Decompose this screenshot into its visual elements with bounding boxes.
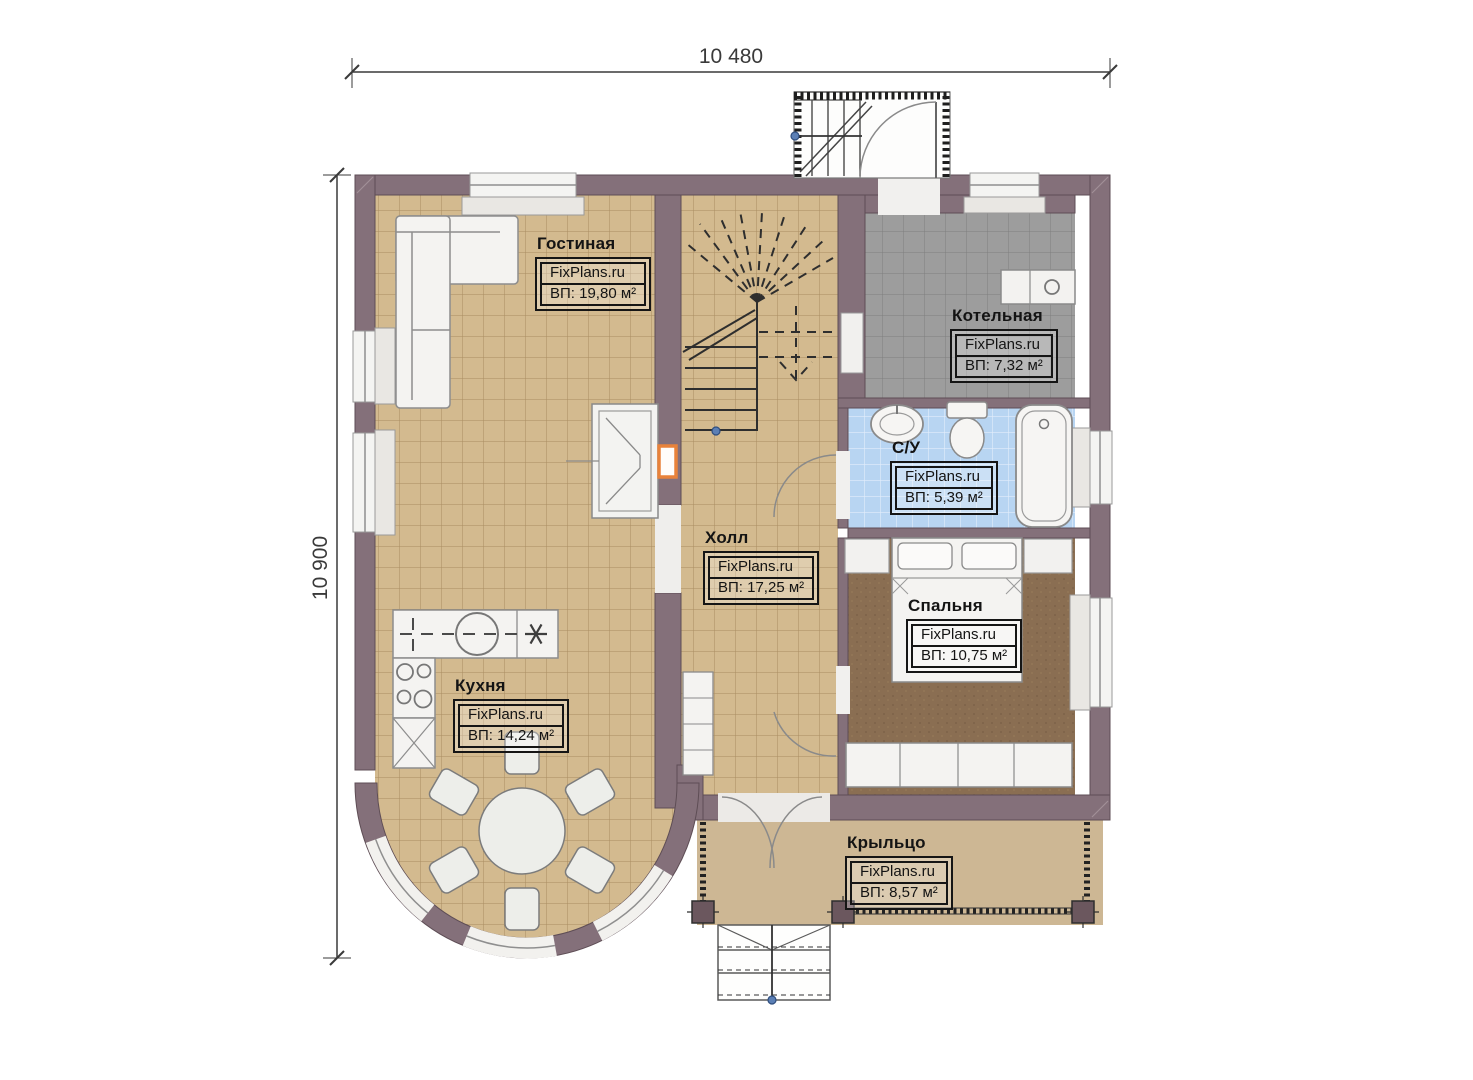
- dimension-width-label: 10 480: [699, 45, 763, 68]
- watermark-text: FixPlans.ru: [955, 334, 1053, 357]
- watermark-box: FixPlans.ru ВП: 10,75 м²: [906, 619, 1022, 673]
- room-area: ВП: 14,24 м²: [458, 727, 564, 748]
- wardrobe: [846, 743, 1072, 787]
- watermark-text: FixPlans.ru: [911, 624, 1017, 647]
- room-area: ВП: 8,57 м²: [850, 884, 948, 905]
- chimney-marker: [659, 446, 676, 477]
- watermark-box: FixPlans.ru ВП: 19,80 м²: [535, 257, 651, 311]
- opening-living-hall: [655, 505, 681, 593]
- nightstand: [1024, 539, 1072, 573]
- watermark-text: FixPlans.ru: [850, 861, 948, 884]
- room-name: Гостиная: [537, 234, 651, 254]
- watermark-box: FixPlans.ru ВП: 8,57 м²: [845, 856, 953, 910]
- watermark-text: FixPlans.ru: [458, 704, 564, 727]
- watermark-box: FixPlans.ru ВП: 17,25 м²: [703, 551, 819, 605]
- room-area: ВП: 17,25 м²: [708, 579, 814, 600]
- hall-cabinet: [683, 672, 713, 775]
- watermark-text: FixPlans.ru: [708, 556, 814, 579]
- side-entrance-landing: [794, 92, 950, 178]
- wall-bath-bedroom: [848, 528, 1090, 538]
- floor-plan: 10 480 10 900 Гостиная FixPlans.ru ВП: 1…: [0, 0, 1473, 1080]
- door-opening-bathroom: [836, 451, 850, 519]
- room-label-boiler: Котельная FixPlans.ru ВП: 7,32 м²: [950, 306, 1058, 383]
- entrance-steps: [718, 925, 830, 1000]
- room-area: ВП: 19,80 м²: [540, 285, 646, 306]
- boiler-unit: [1001, 270, 1075, 304]
- room-label-bathroom: С/У FixPlans.ru ВП: 5,39 м²: [890, 438, 998, 515]
- chair: [505, 888, 539, 930]
- room-label-porch: Крыльцо FixPlans.ru ВП: 8,57 м²: [845, 833, 953, 910]
- pillow: [962, 543, 1016, 569]
- room-name: Котельная: [952, 306, 1058, 326]
- watermark-text: FixPlans.ru: [540, 262, 646, 285]
- door-opening-side-entrance: [878, 173, 940, 215]
- room-area: ВП: 10,75 м²: [911, 647, 1017, 668]
- room-area: ВП: 7,32 м²: [955, 357, 1053, 378]
- room-name: С/У: [892, 438, 998, 458]
- watermark-box: FixPlans.ru ВП: 7,32 м²: [950, 329, 1058, 383]
- nightstand: [845, 539, 889, 573]
- door-opening-bedroom: [836, 666, 850, 714]
- bathtub: [1016, 405, 1072, 527]
- room-name: Холл: [705, 528, 819, 548]
- room-name: Крыльцо: [847, 833, 953, 853]
- dimension-height-label: 10 900: [309, 536, 332, 600]
- room-area: ВП: 5,39 м²: [895, 489, 993, 510]
- room-name: Спальня: [908, 596, 1022, 616]
- room-label-living: Гостиная FixPlans.ru ВП: 19,80 м²: [535, 234, 651, 311]
- pillow: [898, 543, 952, 569]
- room-label-bedroom: Спальня FixPlans.ru ВП: 10,75 м²: [906, 596, 1022, 673]
- room-label-hall: Холл FixPlans.ru ВП: 17,25 м²: [703, 528, 819, 605]
- watermark-text: FixPlans.ru: [895, 466, 993, 489]
- stairs-niche: [841, 313, 863, 373]
- watermark-box: FixPlans.ru ВП: 5,39 м²: [890, 461, 998, 515]
- watermark-box: FixPlans.ru ВП: 14,24 м²: [453, 699, 569, 753]
- room-label-kitchen: Кухня FixPlans.ru ВП: 14,24 м²: [453, 676, 569, 753]
- room-name: Кухня: [455, 676, 569, 696]
